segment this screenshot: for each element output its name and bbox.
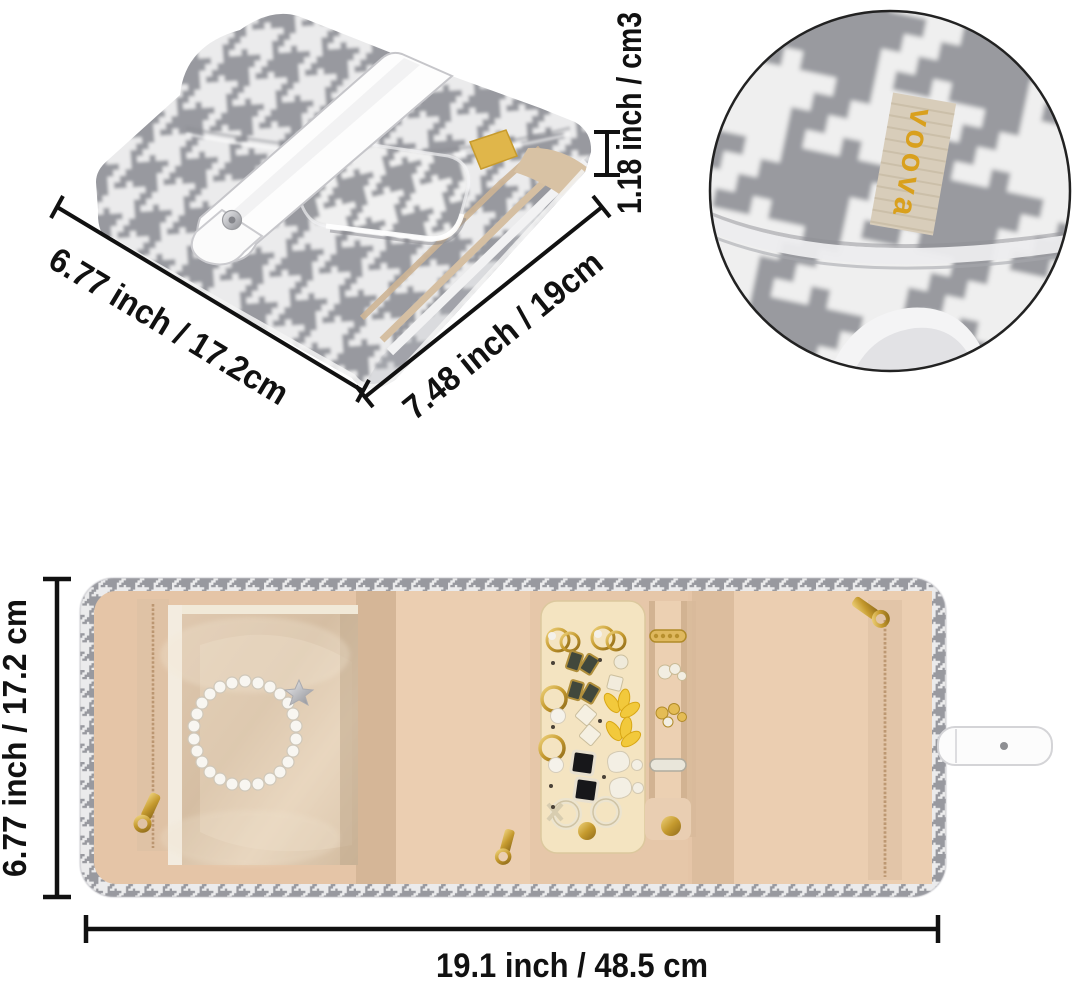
svg-text:6.77 inch / 17.2 cm: 6.77 inch / 17.2 cm <box>0 599 33 877</box>
svg-text:1.18 inch / cm3: 1.18 inch / cm3 <box>611 12 649 214</box>
svg-text:19.1 inch / 48.5 cm: 19.1 inch / 48.5 cm <box>436 947 708 985</box>
